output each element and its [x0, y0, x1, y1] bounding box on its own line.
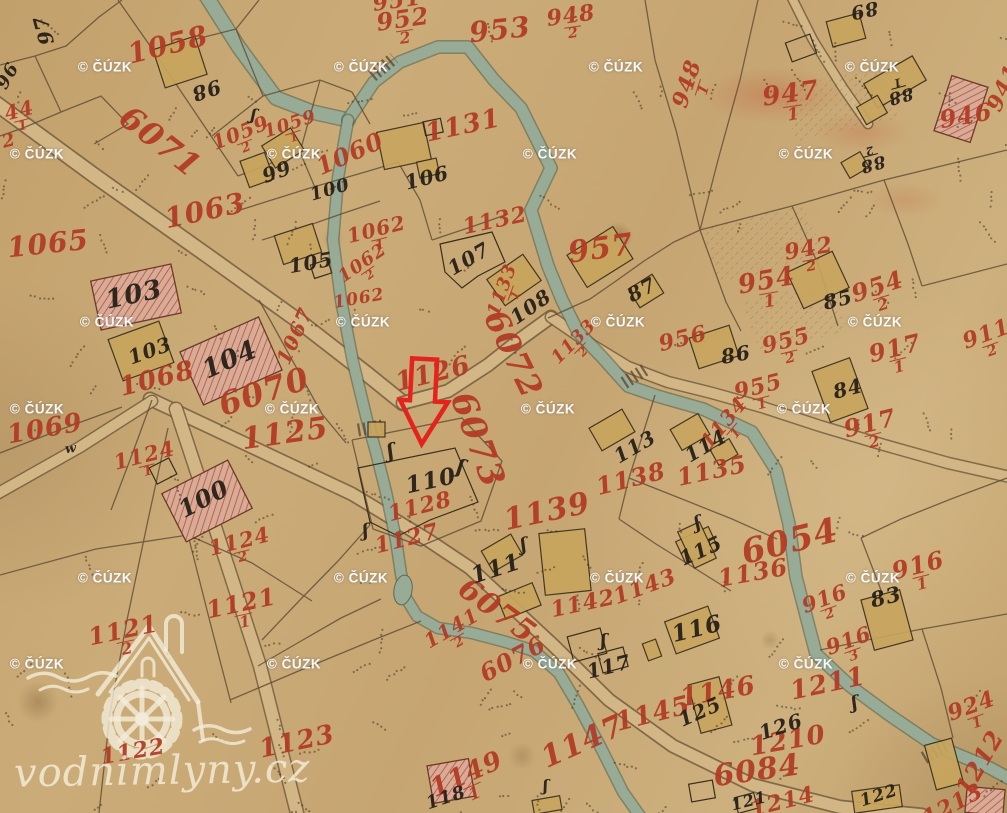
map-linework	[0, 0, 1007, 813]
historical-map-viewport[interactable]: 9511058952295394829481947194694194226071…	[0, 0, 1007, 813]
watermill-logo-icon	[28, 616, 250, 754]
